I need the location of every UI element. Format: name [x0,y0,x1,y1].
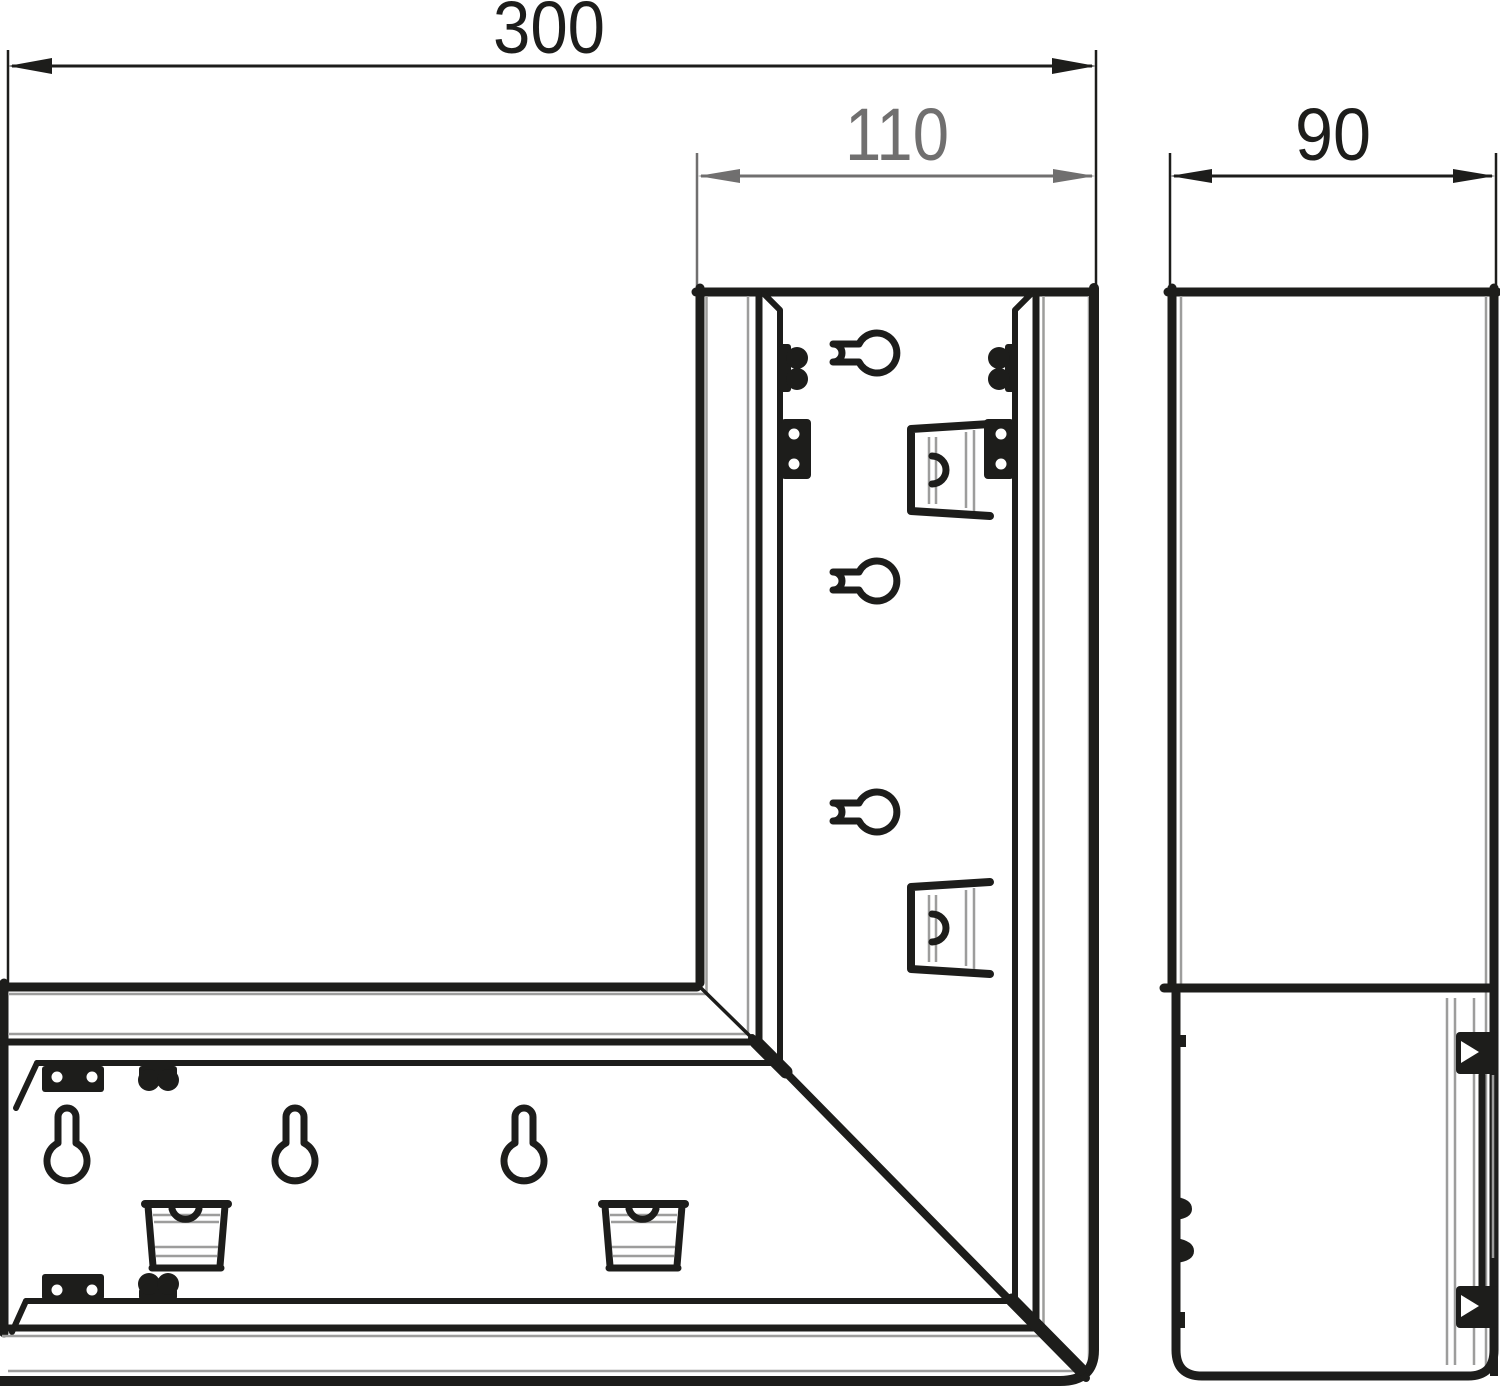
clip-ribs [929,430,974,511]
dimension-depth: 90 [1170,93,1496,288]
keyhole-slot [275,1108,315,1181]
lug-lobe [988,347,1010,369]
dimension-label-duct-width: 110 [845,93,949,176]
cover-flange-right [1015,294,1031,1301]
screw-hole [996,459,1007,470]
technical-drawing-page: 300 110 90 [0,0,1500,1389]
lug-lobe [157,1069,179,1091]
coupler-lug [138,1066,179,1091]
bracket-body [984,419,1014,479]
cable-clip-vertical [911,882,990,974]
miter-line-thin [701,988,752,1038]
cable-clip-vertical [911,424,990,516]
screw-hole [87,1285,98,1296]
arrowhead-left-icon [1170,169,1212,183]
cover-latch-nub [1176,1238,1194,1263]
clip-ribs [929,888,974,969]
arrowhead-right-icon [1052,58,1096,74]
keyhole-slot [504,1108,544,1181]
coupler-lug [988,344,1017,392]
cable-clip-horizontal [145,1204,228,1268]
lug-lobe [786,347,808,369]
clip-outline [911,424,990,516]
screw-hole [52,1285,63,1296]
clip-notch [932,456,946,484]
screw-hole [789,459,800,470]
cover-flange-left [764,294,780,1066]
screw-hole [87,1072,98,1083]
cover-latch-nub [1176,1035,1186,1047]
screw-hole [789,429,800,440]
dimension-label-overall-width: 300 [493,0,605,69]
mounting-bracket [42,1274,104,1300]
lug-lobe [786,368,808,390]
dimension-label-depth: 90 [1295,93,1371,176]
cover-latch-nub [1176,1197,1192,1220]
clip-notch [932,914,946,942]
mounting-bracket [781,419,811,479]
flange-end-cut [16,1063,37,1108]
rail-clamp [1456,1032,1498,1074]
arrowhead-left-icon [698,169,740,183]
keyhole-slot [833,333,897,373]
lug-lobe [138,1069,160,1091]
keyhole-slot [833,792,897,832]
screw-hole [52,1072,63,1083]
lug-lobe [988,368,1010,390]
cable-clip-horizontal [602,1204,685,1268]
keyhole-slots-vertical-duct [833,333,897,832]
lug-lobe [157,1273,179,1295]
screw-hole [996,429,1007,440]
arrowhead-right-icon [1453,169,1495,183]
keyhole-slot [833,561,897,601]
coupler-lug [779,344,808,392]
mounting-bracket [42,1066,104,1092]
rail-clamp [1456,1286,1498,1328]
cover-latch-nub [1176,1312,1185,1328]
mounting-bracket [984,419,1014,479]
bracket-body [781,419,811,479]
side-view-profile [1164,288,1498,1376]
miter-joint [701,988,1086,1378]
lug-lobe [138,1273,160,1295]
miter-weld-wedge [1012,1300,1080,1369]
front-view-flat-angle [0,288,1094,1381]
vertical-duct [696,288,1094,1372]
arrowhead-left-icon [8,58,52,74]
coupler-lug [138,1273,179,1300]
dimension-duct-width: 110 [697,93,1095,288]
arrowhead-right-icon [1053,169,1095,183]
clip-outline [911,882,990,974]
flat-angle-technical-drawing: 300 110 90 [0,0,1500,1389]
keyhole-slots-horizontal-duct [47,1108,544,1181]
horizontal-duct [2,983,1085,1371]
keyhole-slot [47,1108,87,1181]
